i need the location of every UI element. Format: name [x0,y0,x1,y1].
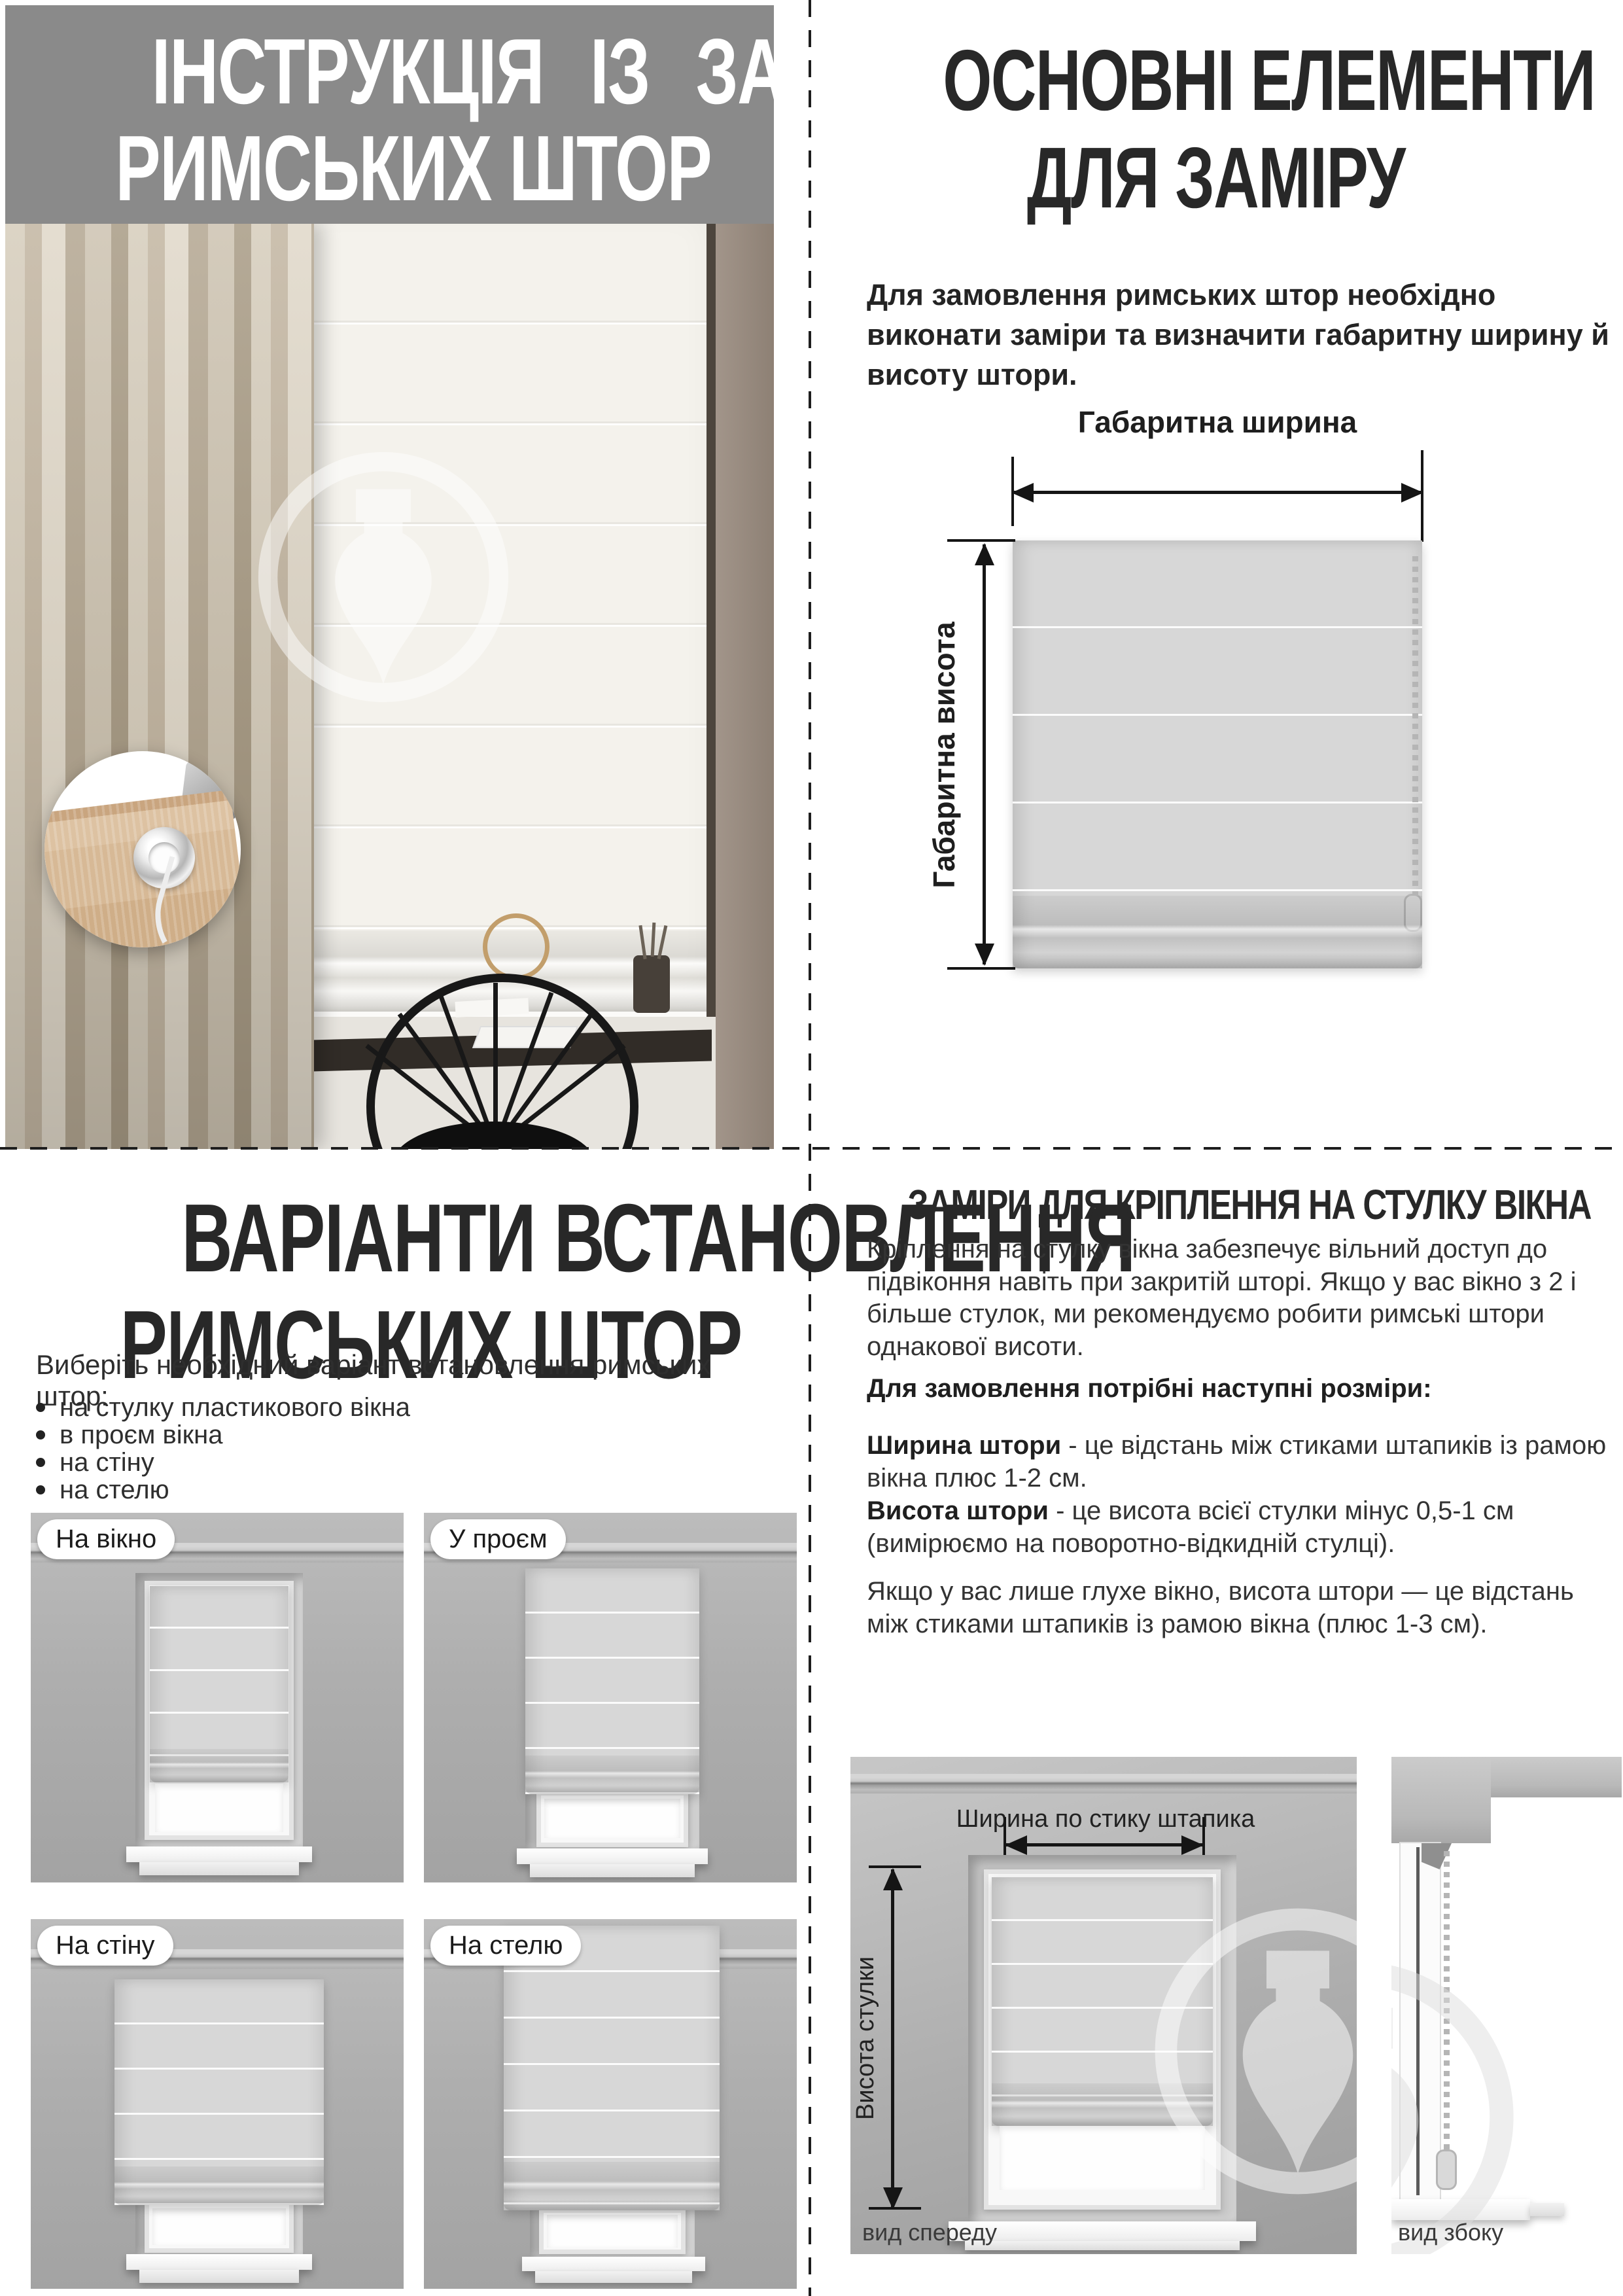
front-view-caption: вид спереду [862,2219,997,2246]
sash-paragraph: Кріплення на стулку вікна забезпечує віл… [867,1233,1613,1363]
roman-blind [114,1979,324,2205]
sizes-lead: Для замовлення потрібні наступні розміри… [867,1373,1613,1405]
window-glass [547,2215,678,2248]
section-heading-elements: ОСНОВНІ ЕЛЕМЕНТИ ДЛЯ ЗАМІРУ [822,31,1610,226]
horizontal-divider [0,1147,1623,1150]
bullet-icon [36,1430,45,1439]
dim-tick [1421,450,1423,542]
windowsill [126,2254,312,2270]
title-line-2: РИМСЬКИХ ШТОР [5,120,774,217]
section-heading-sash-measure: ЗАМІРИ ДЛЯ КРІПЛЕННЯ НА СТУЛКУ ВІКНА [822,1182,1610,1227]
window-glass [544,1799,680,1838]
front-view-diagram: Ширина по стику штапика Висота стулки ви… [850,1757,1357,2254]
leaflet-title-banner: ІНСТРУКЦІЯ ІЗ ЗАМІРУ РИМСЬКИХ ШТОР [5,5,774,224]
dim-tick [869,1865,921,1868]
tile-label: На стелю [430,1926,581,1966]
sill-apron [965,2241,1240,2250]
chain-weight [1404,894,1422,932]
window-glass [152,2208,286,2245]
brand-watermark-icon [1391,1947,1529,2254]
sill-apron [530,1864,695,1877]
sill-apron [535,2271,692,2283]
diagram-roman-blind [1013,540,1422,968]
roman-blind [150,1586,288,1782]
width-term: Ширина штори [867,1431,1061,1460]
roman-blind [525,1568,699,1794]
brand-watermark-icon [246,440,521,715]
window-glass [155,1784,283,1832]
overall-width-label: Габаритна ширина [1013,404,1422,440]
list-item: в проєм вікна [36,1421,788,1449]
windowsill [126,1846,312,1862]
bullet-icon [36,1458,45,1467]
list-item: на стіну [36,1449,788,1476]
overall-height-arrow [983,544,986,964]
title-line-1: ІНСТРУКЦІЯ ІЗ ЗАМІРУ [5,24,774,120]
sill-apron [139,1862,299,1875]
side-view-diagram: вид збоку [1391,1757,1622,2254]
variant-tile-in-opening: У проєм [424,1513,797,1882]
width-definition: Ширина штори - це відстань між стиками ш… [867,1430,1613,1494]
sill-apron [139,2270,299,2283]
side-view-caption: вид збоку [1398,2219,1503,2246]
list-item: на стулку пластикового вікна [36,1394,788,1421]
overall-height-label: Габаритна висота [926,526,960,984]
height-definition: Висота штори - це висота всієї стулки мі… [867,1495,1613,1560]
fixed-window-note: Якщо у вас лише глухе вікно, висота штор… [867,1576,1613,1640]
bullet-icon [36,1485,45,1494]
intro-paragraph: Для замовлення римських штор необхідно в… [867,275,1609,395]
dim-tick [869,2207,921,2210]
wall-cross-section [1391,1757,1491,1843]
wall-cross-section [1491,1757,1622,1797]
sill-step [1530,2203,1564,2216]
windowsill [522,2257,705,2271]
decor-gold-ring [483,913,550,980]
decor-pencil-pot [633,955,670,1013]
interior-photo [5,224,774,1149]
list-item: на стелю [36,1476,788,1504]
bead-width-label: Ширина по стику штапика [955,1805,1256,1833]
tile-label: У проєм [430,1519,566,1559]
tile-label: На стіну [37,1926,173,1966]
sash-height-arrow [891,1869,894,2208]
photo-window-frame-edge [707,224,716,1017]
tile-label: На вікно [37,1519,175,1559]
variant-list: на стулку пластикового вікна в проєм вік… [36,1394,788,1504]
brand-watermark-icon [1141,1894,1357,2208]
blind-detail-inset [44,751,241,947]
bead-width-arrow [1006,1843,1202,1846]
windowsill [517,1848,708,1864]
variant-tile-on-wall: На стіну [31,1919,404,2289]
crown-molding [850,1774,1357,1793]
dim-tick [1011,457,1014,526]
roman-blind [504,1926,720,2210]
overall-width-arrow [1013,491,1422,494]
variant-tile-on-ceiling: На стелю [424,1919,797,2289]
height-term: Висота штори [867,1496,1049,1525]
variant-tile-on-window: На вікно [31,1513,404,1882]
instruction-leaflet: ІНСТРУКЦІЯ ІЗ ЗАМІРУ РИМСЬКИХ ШТОР [0,0,1623,2296]
sash-height-label: Висота стулки [852,1894,881,2182]
bullet-icon [36,1403,45,1412]
photo-side-wall [716,224,774,1149]
blind-chain [1412,556,1418,896]
